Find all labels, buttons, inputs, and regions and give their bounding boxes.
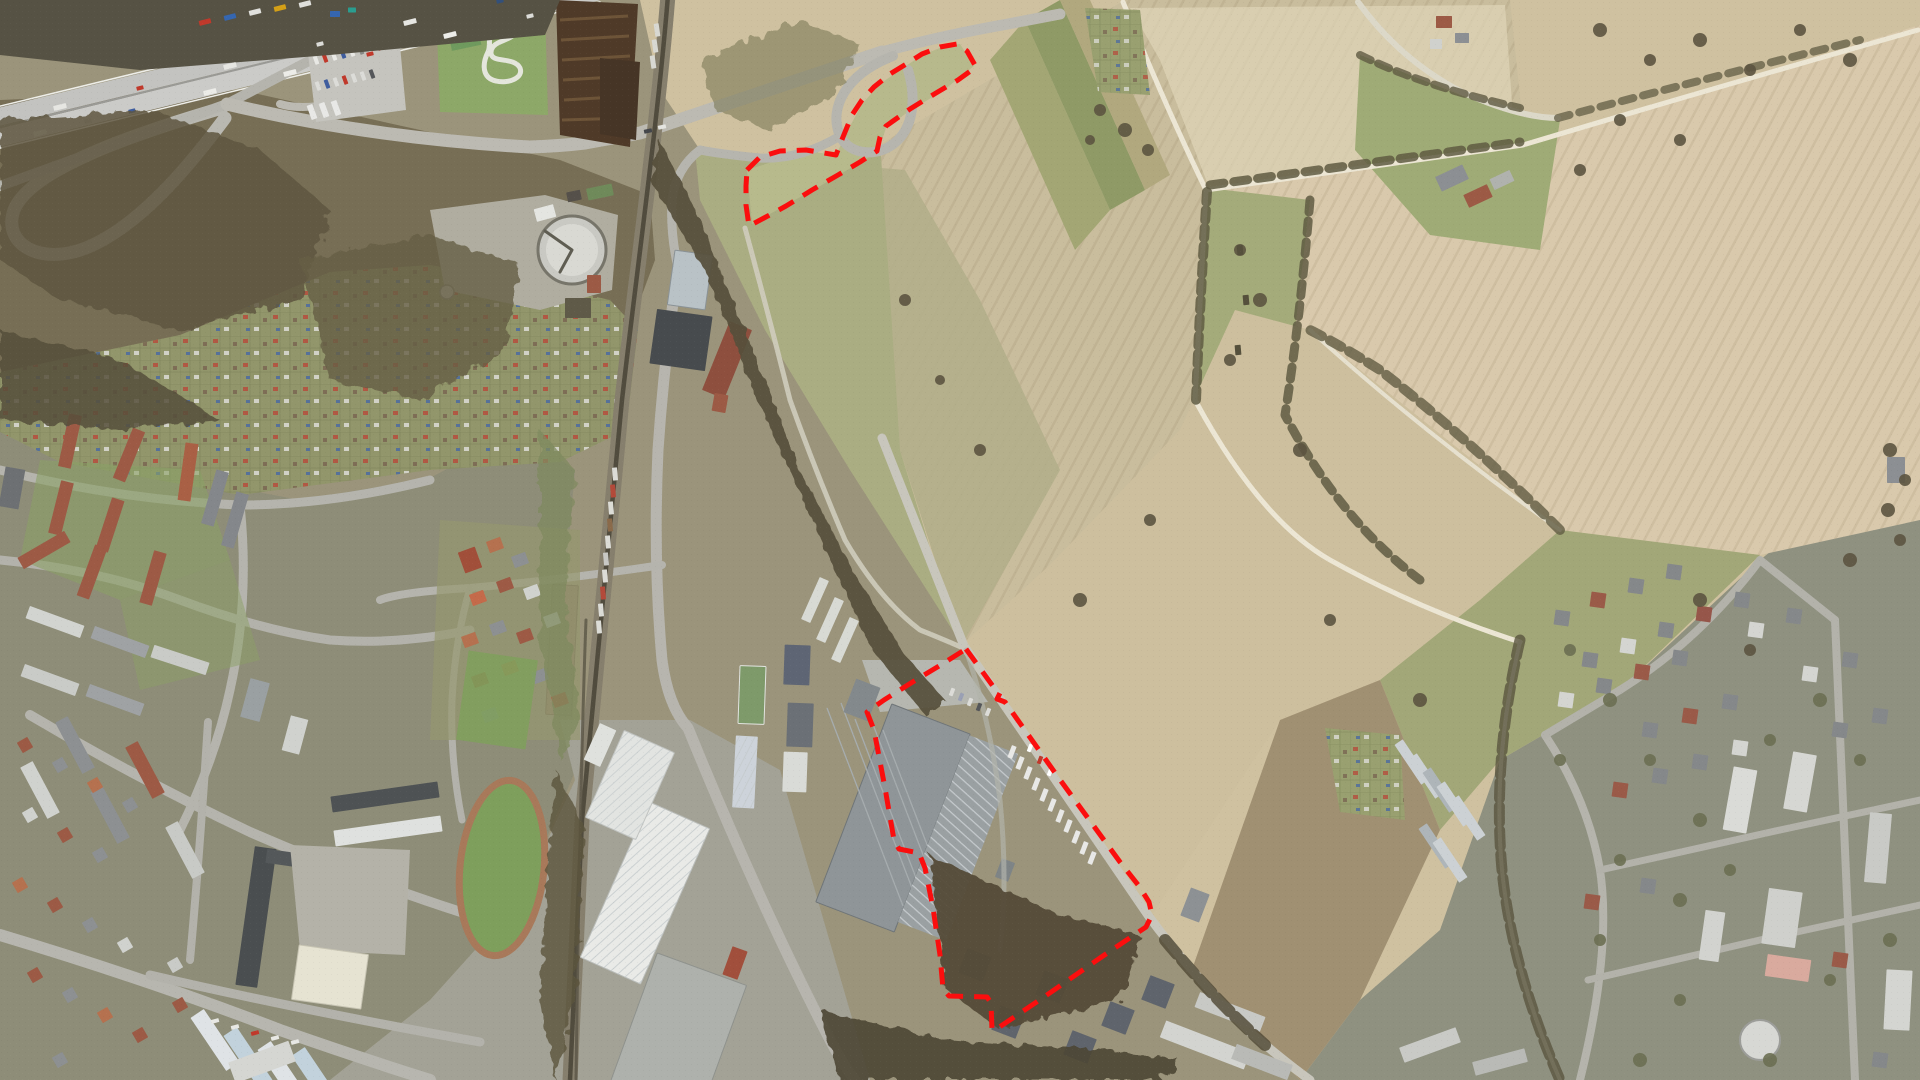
map-canvas (0, 0, 1920, 1080)
map-features-layer (0, 0, 1920, 1080)
photo-grain (0, 0, 1920, 1080)
aerial-orthophoto-map[interactable] (0, 0, 1920, 1080)
